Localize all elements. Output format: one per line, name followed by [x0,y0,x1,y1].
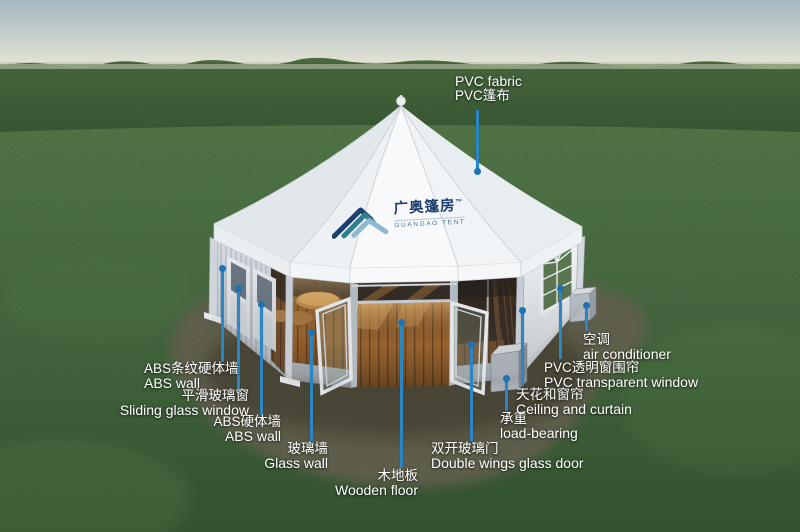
label-glass-wall: 玻璃墙 Glass wall [264,442,328,471]
front-glass-face [350,281,458,388]
brand-name-cn: 广奥篷房™ [393,194,465,219]
leader-glass-wall [310,332,313,441]
leader-abs-wall [260,304,263,415]
label-abs-striped-wall: ABS条纹硬体墙 ABS wall [144,362,239,391]
scene: 广奥篷房™ GUANGAO TENT PVC fabric PVC篷布 ABS条… [0,0,800,532]
trademark-symbol: ™ [455,199,463,206]
label-ceiling-and-curtain: 天花和窗帘 Ceiling and curtain [516,388,632,417]
brand-logo: 广奥篷房™ GUANGAO TENT [330,194,466,240]
leader-pvc-transparent-window [559,288,562,359]
leader-abs-striped-wall [221,268,224,362]
leader-ceiling-and-curtain [521,310,524,386]
leader-wooden-floor [400,322,403,468]
brand-name-en: GUANGAO TENT [394,216,465,229]
label-air-conditioner: 空调 air conditioner [583,333,671,362]
glass-door-left [317,299,351,393]
brand-text: 广奥篷房™ GUANGAO TENT [393,194,466,230]
leader-pvc-fabric [476,110,479,172]
leader-air-conditioner [585,305,588,331]
label-double-wings-glass-door: 双开玻璃门 Double wings glass door [431,442,584,471]
label-wooden-floor: 木地板 Wooden floor [335,469,418,498]
mountain-logo-icon [330,200,390,239]
leader-load-bearing [505,378,508,411]
label-abs-wall: ABS硬体墙 ABS wall [213,415,281,444]
label-pvc-transparent-window: PVC透明窗围帘 PVC transparent window [544,361,698,390]
sky [0,0,800,70]
label-pvc-fabric: PVC fabric PVC篷布 [455,74,522,103]
wooden-floor-interior [356,302,450,388]
leader-double-wings-glass-door [470,344,473,441]
